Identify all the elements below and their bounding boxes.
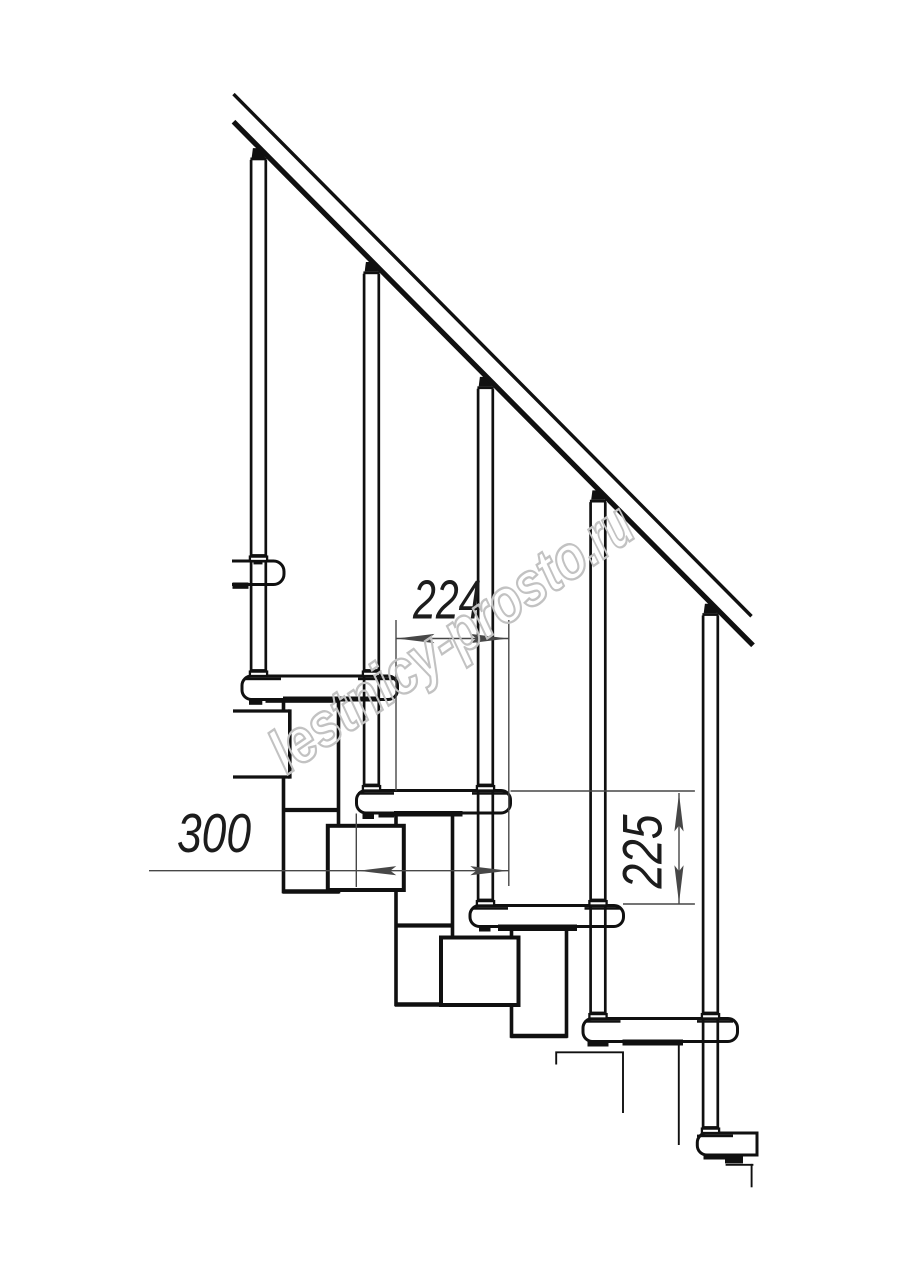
svg-text:300: 300 — [177, 802, 251, 864]
svg-text:225: 225 — [612, 814, 674, 889]
